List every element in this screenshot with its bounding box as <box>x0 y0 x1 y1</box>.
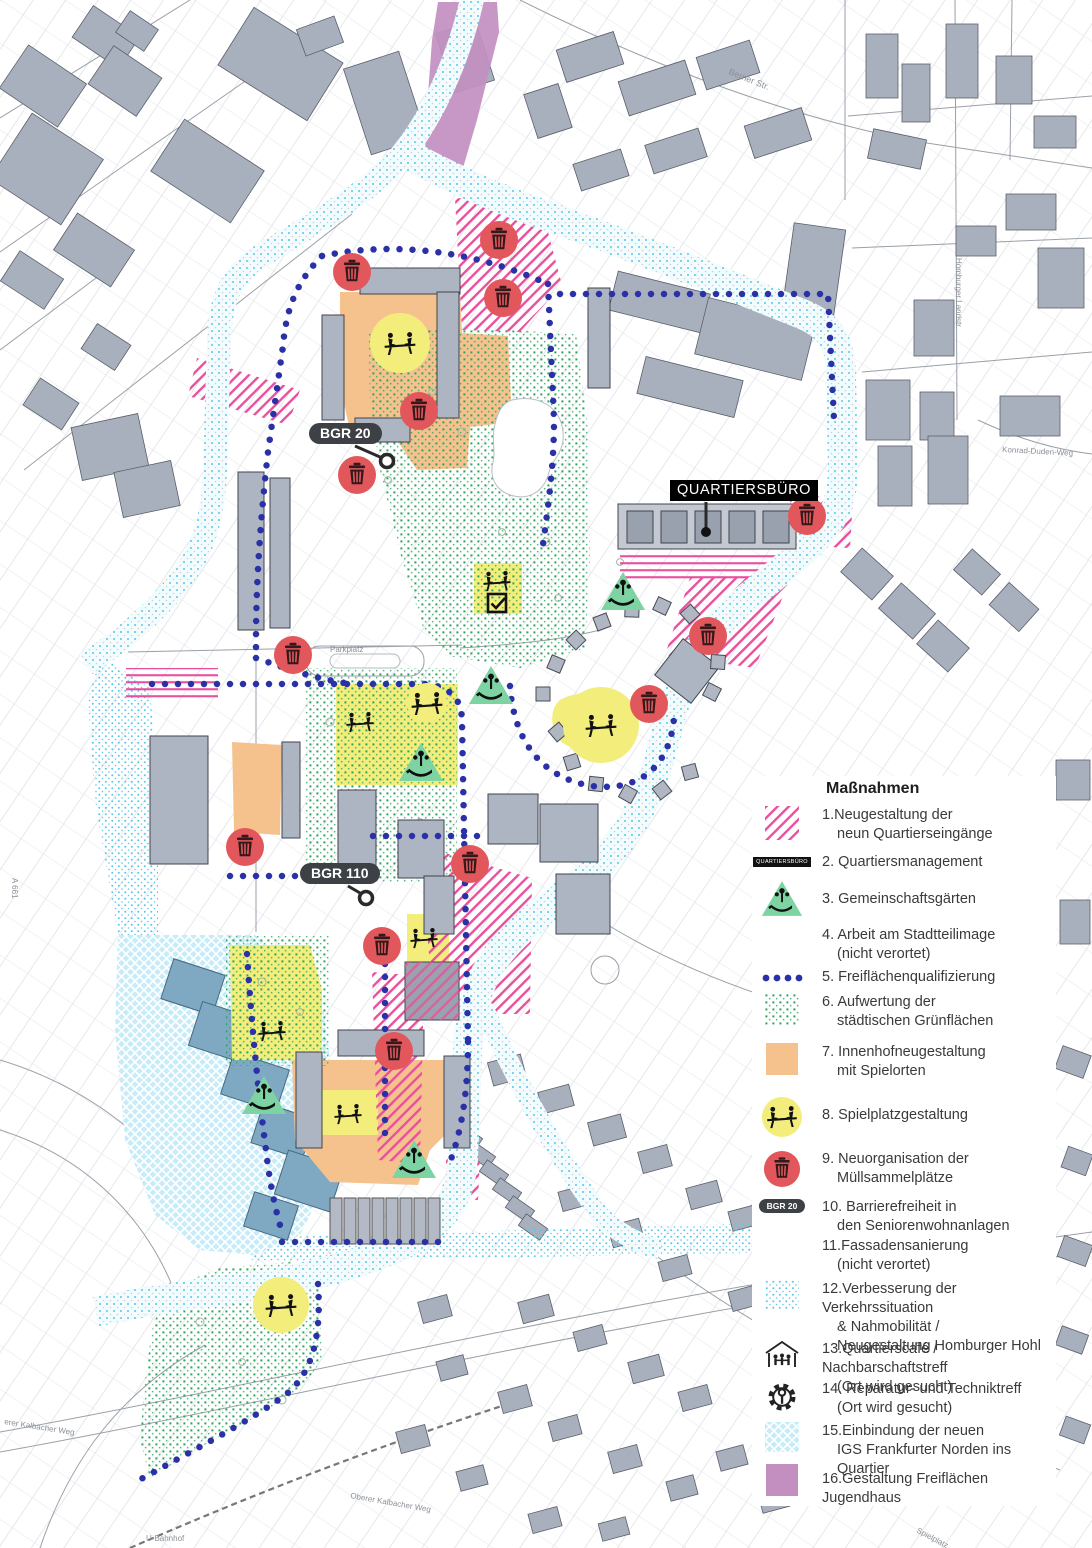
building <box>400 1198 412 1244</box>
waste-collection-marker <box>630 685 668 723</box>
legend-item-4: 4. Arbeit am Stadtteilimage(nicht verort… <box>752 926 1052 964</box>
building <box>540 804 598 862</box>
building <box>437 292 459 418</box>
building <box>1060 900 1090 944</box>
building <box>424 876 454 934</box>
building <box>282 742 300 838</box>
waste-collection-marker <box>363 927 401 965</box>
legend-item-text: 7. Innenhofneugestaltungmit Spielorten <box>806 1043 986 1081</box>
building <box>695 511 721 543</box>
building <box>1038 248 1084 308</box>
legend-swatch-blue-dots <box>758 968 806 984</box>
building <box>414 1198 426 1244</box>
legend-item-text: 10. Barrierefreiheit inden Seniorenwohna… <box>806 1198 1010 1236</box>
building <box>996 56 1032 104</box>
building <box>488 794 538 844</box>
legend-item-text: 9. Neuorganisation derMüllsammelplätze <box>806 1150 969 1188</box>
playground-area <box>253 1277 309 1333</box>
building <box>1056 760 1090 800</box>
building <box>398 820 444 878</box>
legend-item-text: 3. Gemeinschaftsgärten <box>806 880 976 909</box>
legend-swatch-house <box>758 1340 806 1370</box>
legend-item-6: 6. Aufwertung derstädtischen Grünflächen <box>752 993 1052 1031</box>
building <box>763 511 789 543</box>
legend-swatch-trash-circle <box>758 1150 806 1188</box>
street-label: Homburger Landstr. <box>954 258 963 329</box>
building <box>372 1198 384 1244</box>
building <box>1000 396 1060 436</box>
waste-collection-marker <box>480 221 518 259</box>
building <box>386 1198 398 1244</box>
building <box>946 24 978 98</box>
callout-bgr110: BGR 110 <box>300 863 380 884</box>
legend-item-text: 6. Aufwertung derstädtischen Grünflächen <box>806 993 993 1031</box>
legend-swatch-orange-square <box>758 1043 806 1075</box>
callout-dot <box>701 527 711 537</box>
legend-panel: Maßnahmen 1.Neugestaltung derneun Quarti… <box>752 776 1056 1506</box>
building <box>902 64 930 122</box>
legend-swatch-purple-square <box>758 1464 806 1496</box>
building <box>661 511 687 543</box>
building <box>556 874 610 934</box>
building <box>358 1198 370 1244</box>
legend-swatch-gear <box>758 1380 806 1414</box>
building <box>322 315 344 420</box>
legend-item-3: 3. Gemeinschaftsgärten <box>752 880 1052 917</box>
building <box>588 288 610 388</box>
building <box>681 763 698 780</box>
building <box>536 687 550 701</box>
legend-item-text: 11.Fassadensanierung(nicht verortet) <box>806 1237 968 1275</box>
waste-collection-marker <box>788 497 826 535</box>
legend-swatch-garden <box>758 880 806 917</box>
legend-swatch-play-circle <box>758 1096 806 1138</box>
building <box>344 1198 356 1244</box>
legend-item-11: 11.Fassadensanierung(nicht verortet) <box>752 1237 1052 1275</box>
waste-collection-marker <box>226 828 264 866</box>
building <box>238 472 264 630</box>
legend-title: Maßnahmen <box>826 780 919 798</box>
building <box>878 446 912 506</box>
building <box>270 478 290 628</box>
urban-plan-screenshot: Berner Str.Homburger Landstr.Konrad-Dude… <box>0 0 1092 1548</box>
waste-collection-marker <box>451 845 489 883</box>
callout-quartiersbuero: QUARTIERSBÜRO <box>670 480 818 501</box>
playground-area <box>407 683 447 723</box>
legend-item-text: 8. Spielplatzgestaltung <box>806 1096 968 1125</box>
legend-item-7: 7. Innenhofneugestaltungmit Spielorten <box>752 1043 1052 1081</box>
legend-item-text: 1.Neugestaltung derneun Quartierseingäng… <box>806 806 993 844</box>
building <box>1006 194 1056 230</box>
playground-area <box>370 313 430 373</box>
legend-swatch-qb-label: QUARTIERSBÜRO <box>758 853 806 867</box>
building <box>956 226 996 256</box>
square-pink-cross <box>405 962 459 1020</box>
street-label: Parkplatz <box>330 645 363 654</box>
building <box>428 1198 440 1244</box>
playground-area <box>563 687 639 763</box>
legend-item-text: 4. Arbeit am Stadtteilimage(nicht verort… <box>806 926 995 964</box>
legend-item-5: 5. Freiflächenqualifizierung <box>752 968 1052 987</box>
building <box>729 511 755 543</box>
legend-item-10: BGR 2010. Barrierefreiheit inden Seniore… <box>752 1198 1052 1236</box>
waste-collection-marker <box>333 253 371 291</box>
callout-ring <box>381 455 394 468</box>
legend-item-16: 16.Gestaltung Freiflächen Jugendhaus <box>752 1464 1052 1508</box>
waste-collection-marker <box>689 617 727 655</box>
building <box>627 511 653 543</box>
legend-swatch-cyan-cross <box>758 1422 806 1452</box>
building <box>1034 116 1076 148</box>
legend-item-9: 9. Neuorganisation derMüllsammelplätze <box>752 1150 1052 1188</box>
building <box>866 380 910 440</box>
street-label: U-Bahnhof <box>146 1534 185 1543</box>
callout-ring <box>360 892 373 905</box>
legend-swatch-bgr-pill: BGR 20 <box>758 1198 806 1213</box>
waste-collection-marker <box>274 636 312 674</box>
legend-swatch-pink-hatch <box>758 806 806 840</box>
legend-item-14: 14. Reparatur- und Techniktreff(Ort wird… <box>752 1380 1052 1418</box>
building <box>711 655 726 670</box>
callout-bgr20: BGR 20 <box>309 423 382 444</box>
building <box>866 34 898 98</box>
building <box>914 300 954 356</box>
building <box>928 436 968 504</box>
waste-collection-marker <box>375 1032 413 1070</box>
legend-item-text: 14. Reparatur- und Techniktreff(Ort wird… <box>806 1380 1021 1418</box>
waste-collection-marker <box>338 456 376 494</box>
legend-item-2: QUARTIERSBÜRO2. Quartiersmanagement <box>752 853 1052 872</box>
legend-item-8: 8. Spielplatzgestaltung <box>752 1096 1052 1138</box>
legend-item-text: 16.Gestaltung Freiflächen Jugendhaus <box>806 1464 1052 1508</box>
building <box>360 268 460 294</box>
legend-item-text: 5. Freiflächenqualifizierung <box>806 968 995 987</box>
building <box>296 1052 322 1148</box>
building <box>338 790 376 870</box>
legend-swatch-cyan-dots <box>758 1280 806 1310</box>
building <box>920 392 954 440</box>
building <box>150 736 208 864</box>
building <box>330 1198 342 1244</box>
legend-swatch-green-dots <box>758 993 806 1025</box>
street-label: A 661 <box>10 878 19 899</box>
waste-collection-marker <box>484 279 522 317</box>
waste-collection-marker <box>400 392 438 430</box>
legend-item-text: 2. Quartiersmanagement <box>806 853 982 872</box>
legend-item-1: 1.Neugestaltung derneun Quartierseingäng… <box>752 806 1052 844</box>
